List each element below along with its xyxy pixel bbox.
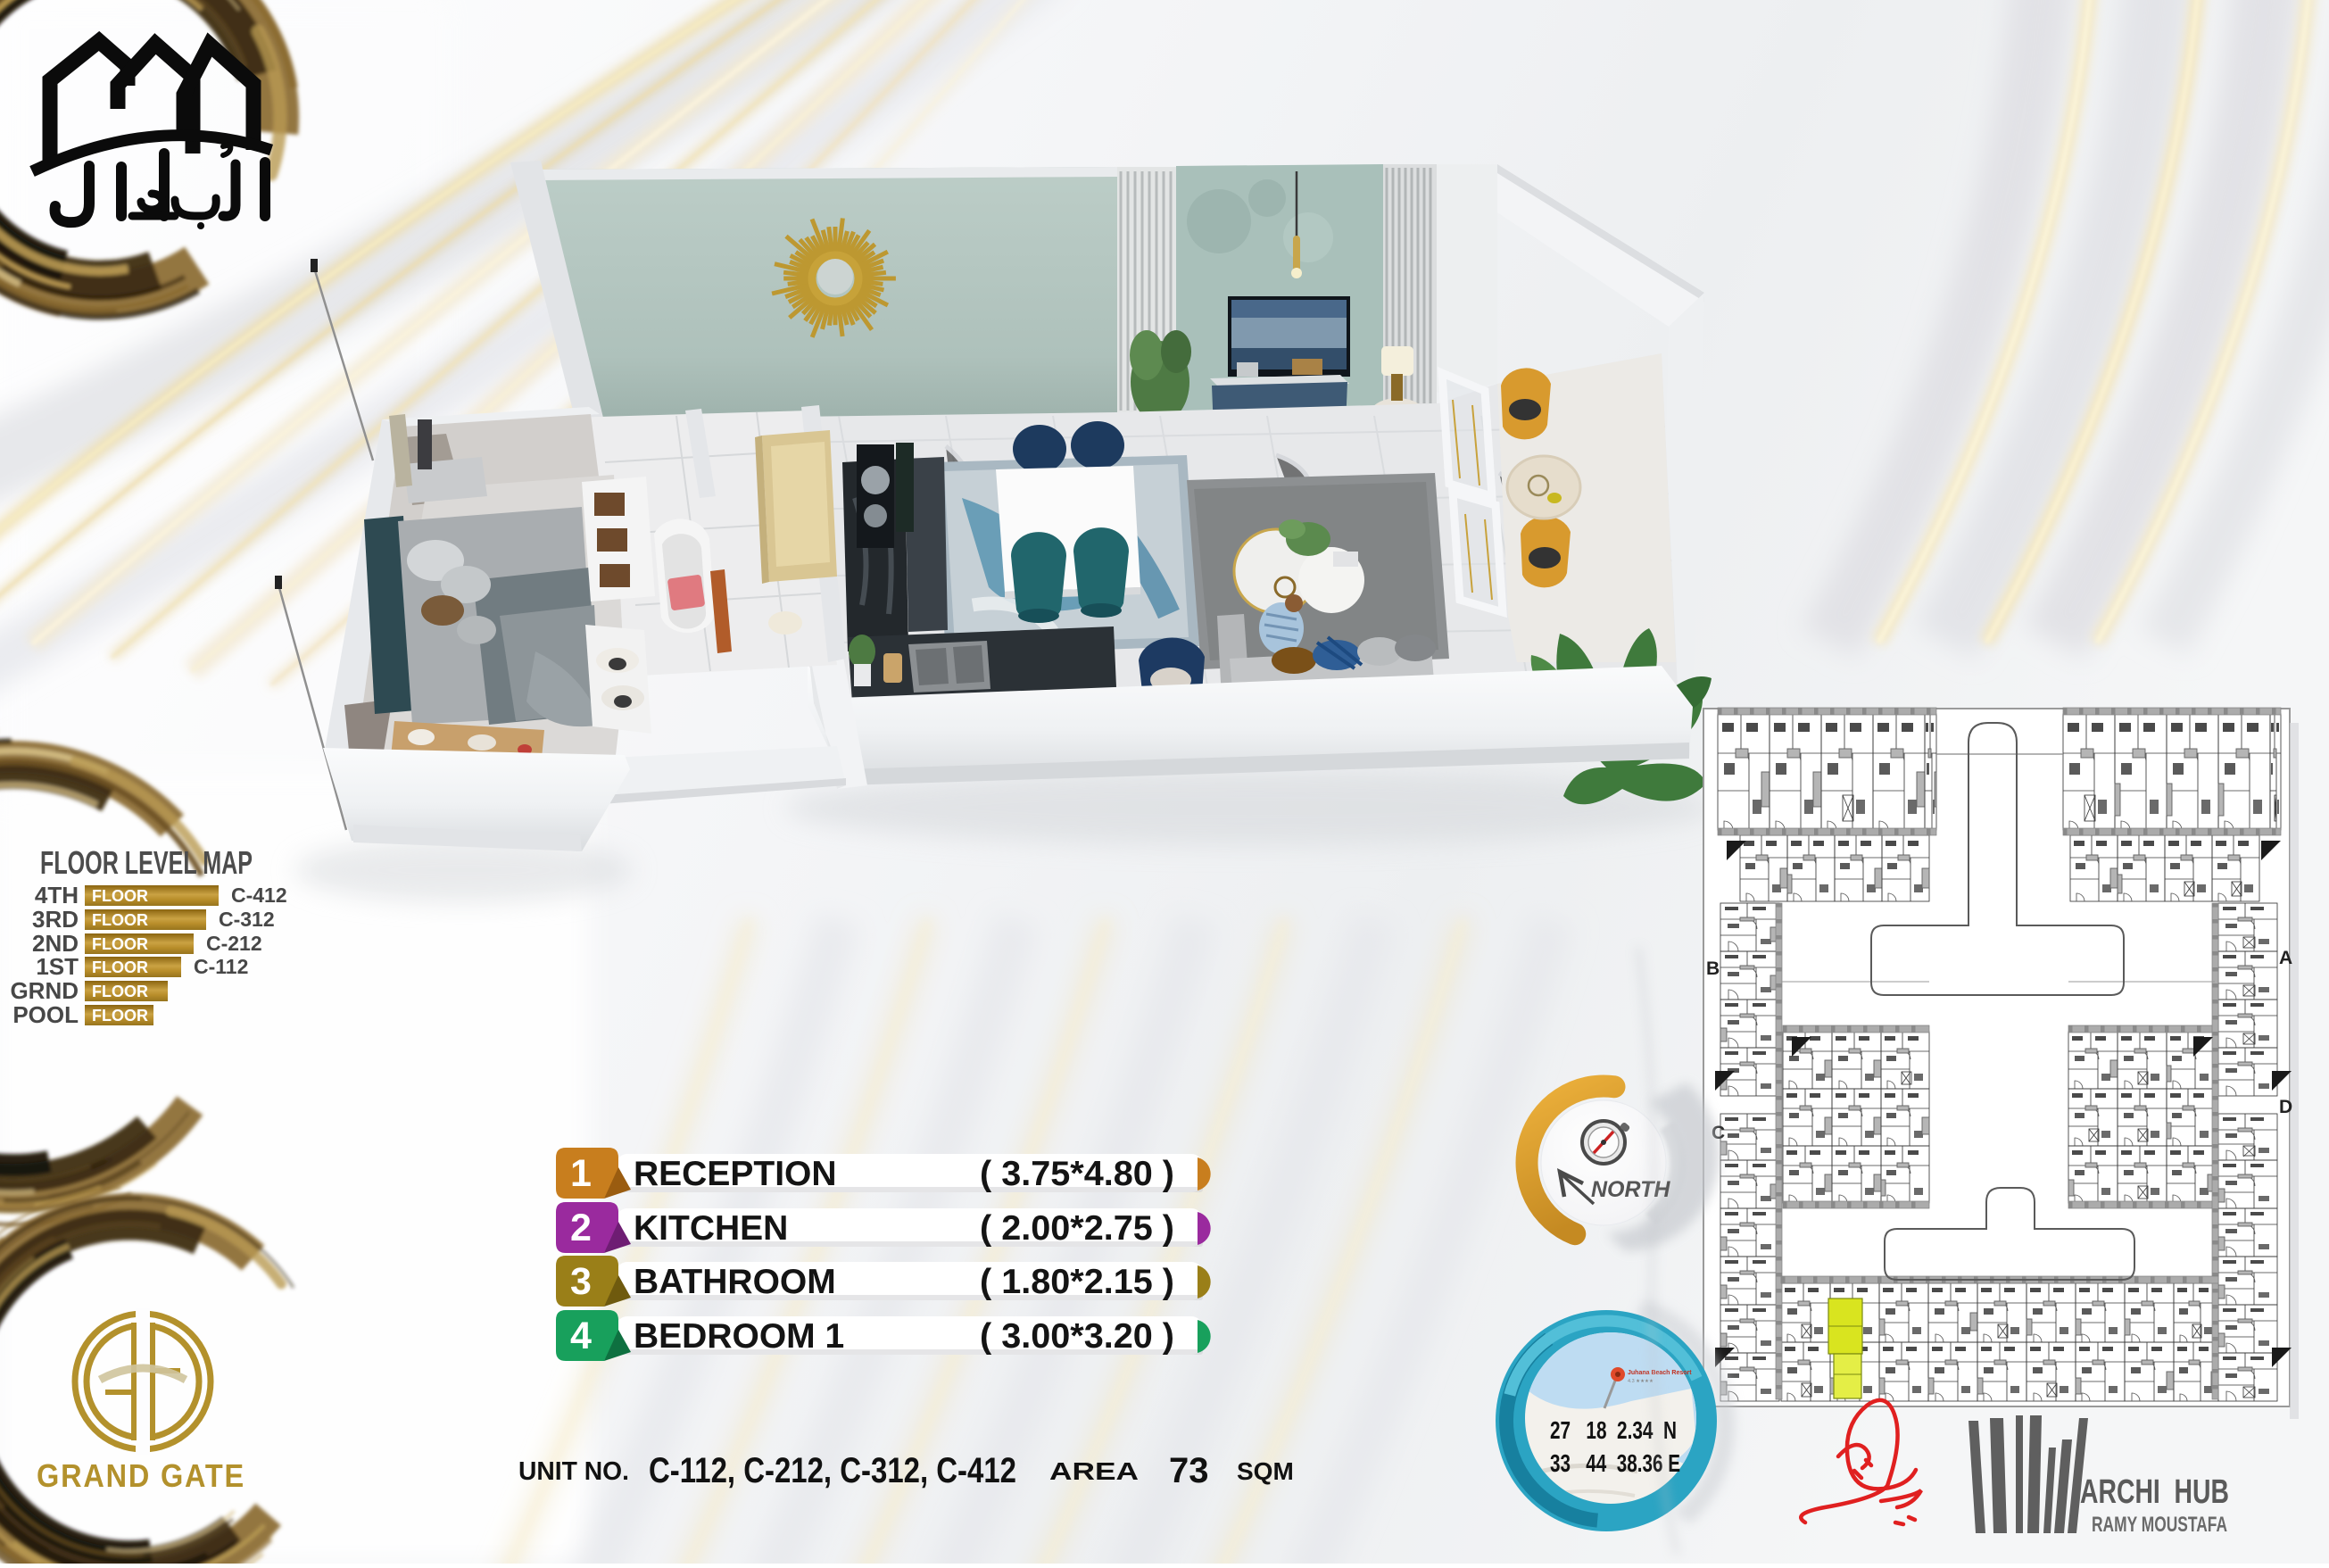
svg-text:A: A (2279, 948, 2292, 968)
svg-text:( 3.00*3.20 ): ( 3.00*3.20 ) (980, 1317, 1174, 1356)
svg-text:ARCHI HUB: ARCHI HUB (2080, 1473, 2229, 1511)
svg-text:( 3.75*4.80 ): ( 3.75*4.80 ) (980, 1155, 1174, 1193)
svg-text:POOL: POOL (12, 1001, 79, 1028)
svg-text:BEDROOM 1: BEDROOM 1 (634, 1317, 844, 1356)
svg-text:RECEPTION: RECEPTION (634, 1155, 837, 1193)
svg-text:SQM: SQM (1237, 1457, 1294, 1485)
svg-text:4: 4 (570, 1315, 592, 1357)
svg-text:NORTH: NORTH (1591, 1177, 1670, 1202)
svg-text:FLOOR: FLOOR (92, 911, 148, 929)
svg-text:4TH: 4TH (35, 882, 79, 908)
svg-text:FLOOR: FLOOR (92, 983, 148, 1000)
svg-text:RAMY MOUSTAFA: RAMY MOUSTAFA (2092, 1513, 2227, 1537)
svg-text:C-312: C-312 (219, 908, 275, 931)
svg-text:1ST: 1ST (36, 953, 79, 980)
svg-text:AREA: AREA (1049, 1457, 1139, 1485)
svg-text:C-112, C-212, C-312, C-412: C-112, C-212, C-312, C-412 (649, 1451, 1016, 1490)
svg-text:4.3 ★★★★: 4.3 ★★★★ (1628, 1378, 1654, 1384)
svg-text:FLOOR: FLOOR (92, 958, 148, 976)
svg-text:( 1.80*2.15 ): ( 1.80*2.15 ) (980, 1263, 1174, 1301)
svg-text:Juhana Beach Resort: Juhana Beach Resort (1628, 1370, 1692, 1376)
svg-text:FLOOR: FLOOR (92, 1007, 148, 1025)
svg-text:KITCHEN: KITCHEN (634, 1209, 788, 1248)
svg-text:BATHROOM: BATHROOM (634, 1263, 836, 1301)
svg-text:B: B (1706, 958, 1720, 979)
svg-text:UNIT NO.: UNIT NO. (518, 1457, 629, 1486)
svg-text:73: 73 (1169, 1451, 1209, 1490)
svg-text:C-212: C-212 (206, 932, 262, 955)
svg-text:D: D (2279, 1097, 2292, 1117)
svg-text:FLOOR LEVEL MAP: FLOOR LEVEL MAP (40, 844, 253, 881)
svg-text:GRND: GRND (10, 977, 79, 1004)
svg-text:( 2.00*2.75 ): ( 2.00*2.75 ) (980, 1209, 1174, 1248)
svg-text:GRAND GATE: GRAND GATE (37, 1457, 245, 1494)
svg-text:C-112: C-112 (194, 955, 248, 978)
svg-text:3RD: 3RD (32, 906, 79, 933)
svg-text:3: 3 (570, 1260, 592, 1303)
svg-text:1: 1 (570, 1152, 592, 1195)
svg-text:FLOOR: FLOOR (92, 887, 148, 905)
svg-text:C-412: C-412 (231, 884, 287, 907)
svg-text:FLOOR: FLOOR (92, 935, 148, 953)
svg-text:2: 2 (570, 1207, 592, 1249)
